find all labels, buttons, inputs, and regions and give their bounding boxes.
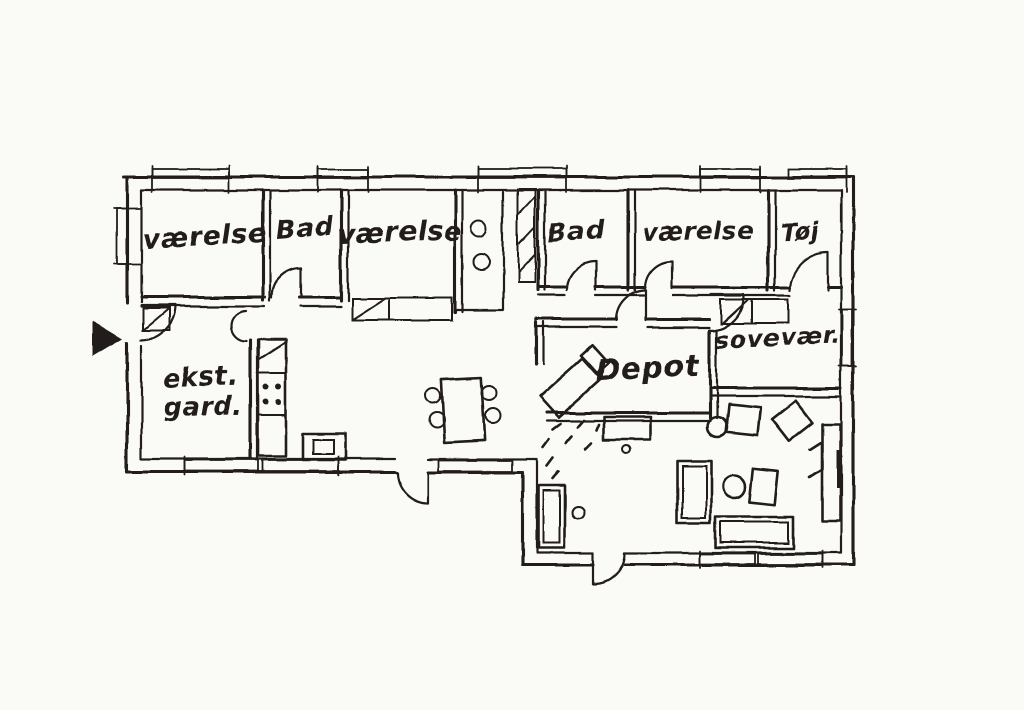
hall-table: [604, 417, 650, 453]
bad-west-door: [272, 267, 302, 297]
living-exterior-door: [594, 553, 625, 584]
daybed: [678, 461, 711, 523]
dining-chairs: [426, 386, 501, 428]
floorplan-canvas: værelse Bad værelse Bad værelse Tøj sove…: [0, 0, 1024, 710]
entrance-arrow-icon: [93, 321, 123, 357]
sideboard-east: [810, 424, 841, 520]
sofa: [716, 517, 794, 548]
room-label-bad-east: Bad: [547, 216, 606, 249]
vaerelse-ne-door: [645, 261, 672, 288]
round-side-table: [707, 417, 727, 437]
room-label-ekst: ekst.: [162, 362, 238, 395]
armchair-2: [772, 401, 813, 442]
room-label-vaerelse-n: værelse: [337, 216, 463, 251]
sketch-page: værelse Bad værelse Bad værelse Tøj sove…: [0, 0, 1024, 710]
room-label-vaerelse-ne: værelse: [642, 217, 754, 247]
room-label-depot: Depot: [595, 348, 702, 388]
kitchen-counter: [258, 340, 286, 456]
room-label-toj: Tøj: [779, 217, 820, 246]
toj-door: [790, 252, 828, 290]
mid-wardrobe: [352, 298, 452, 320]
hatched-column: [518, 189, 535, 282]
kitchen-sink: [303, 434, 345, 460]
armchair-1: [726, 404, 761, 435]
room-label-gard: gard.: [163, 391, 243, 422]
bookshelf-west: [538, 486, 565, 548]
entry-radiator: [143, 308, 169, 330]
room-label-sovevaerelse: sovevær.: [715, 322, 841, 354]
hall-wardrobe: [471, 220, 489, 270]
dashed-marks: [542, 420, 599, 479]
ekst-gard-door: [231, 311, 246, 341]
room-label-vaerelse-nw: værelse: [141, 218, 267, 255]
bedroom-wardrobe: [722, 299, 788, 323]
dining-table: [441, 377, 484, 443]
small-stool: [572, 507, 584, 519]
kitchen-exterior-door: [397, 472, 428, 503]
bad-east-door: [567, 262, 595, 290]
room-label-bad-west: Bad: [275, 212, 334, 246]
chair-and-stool: [723, 469, 779, 506]
